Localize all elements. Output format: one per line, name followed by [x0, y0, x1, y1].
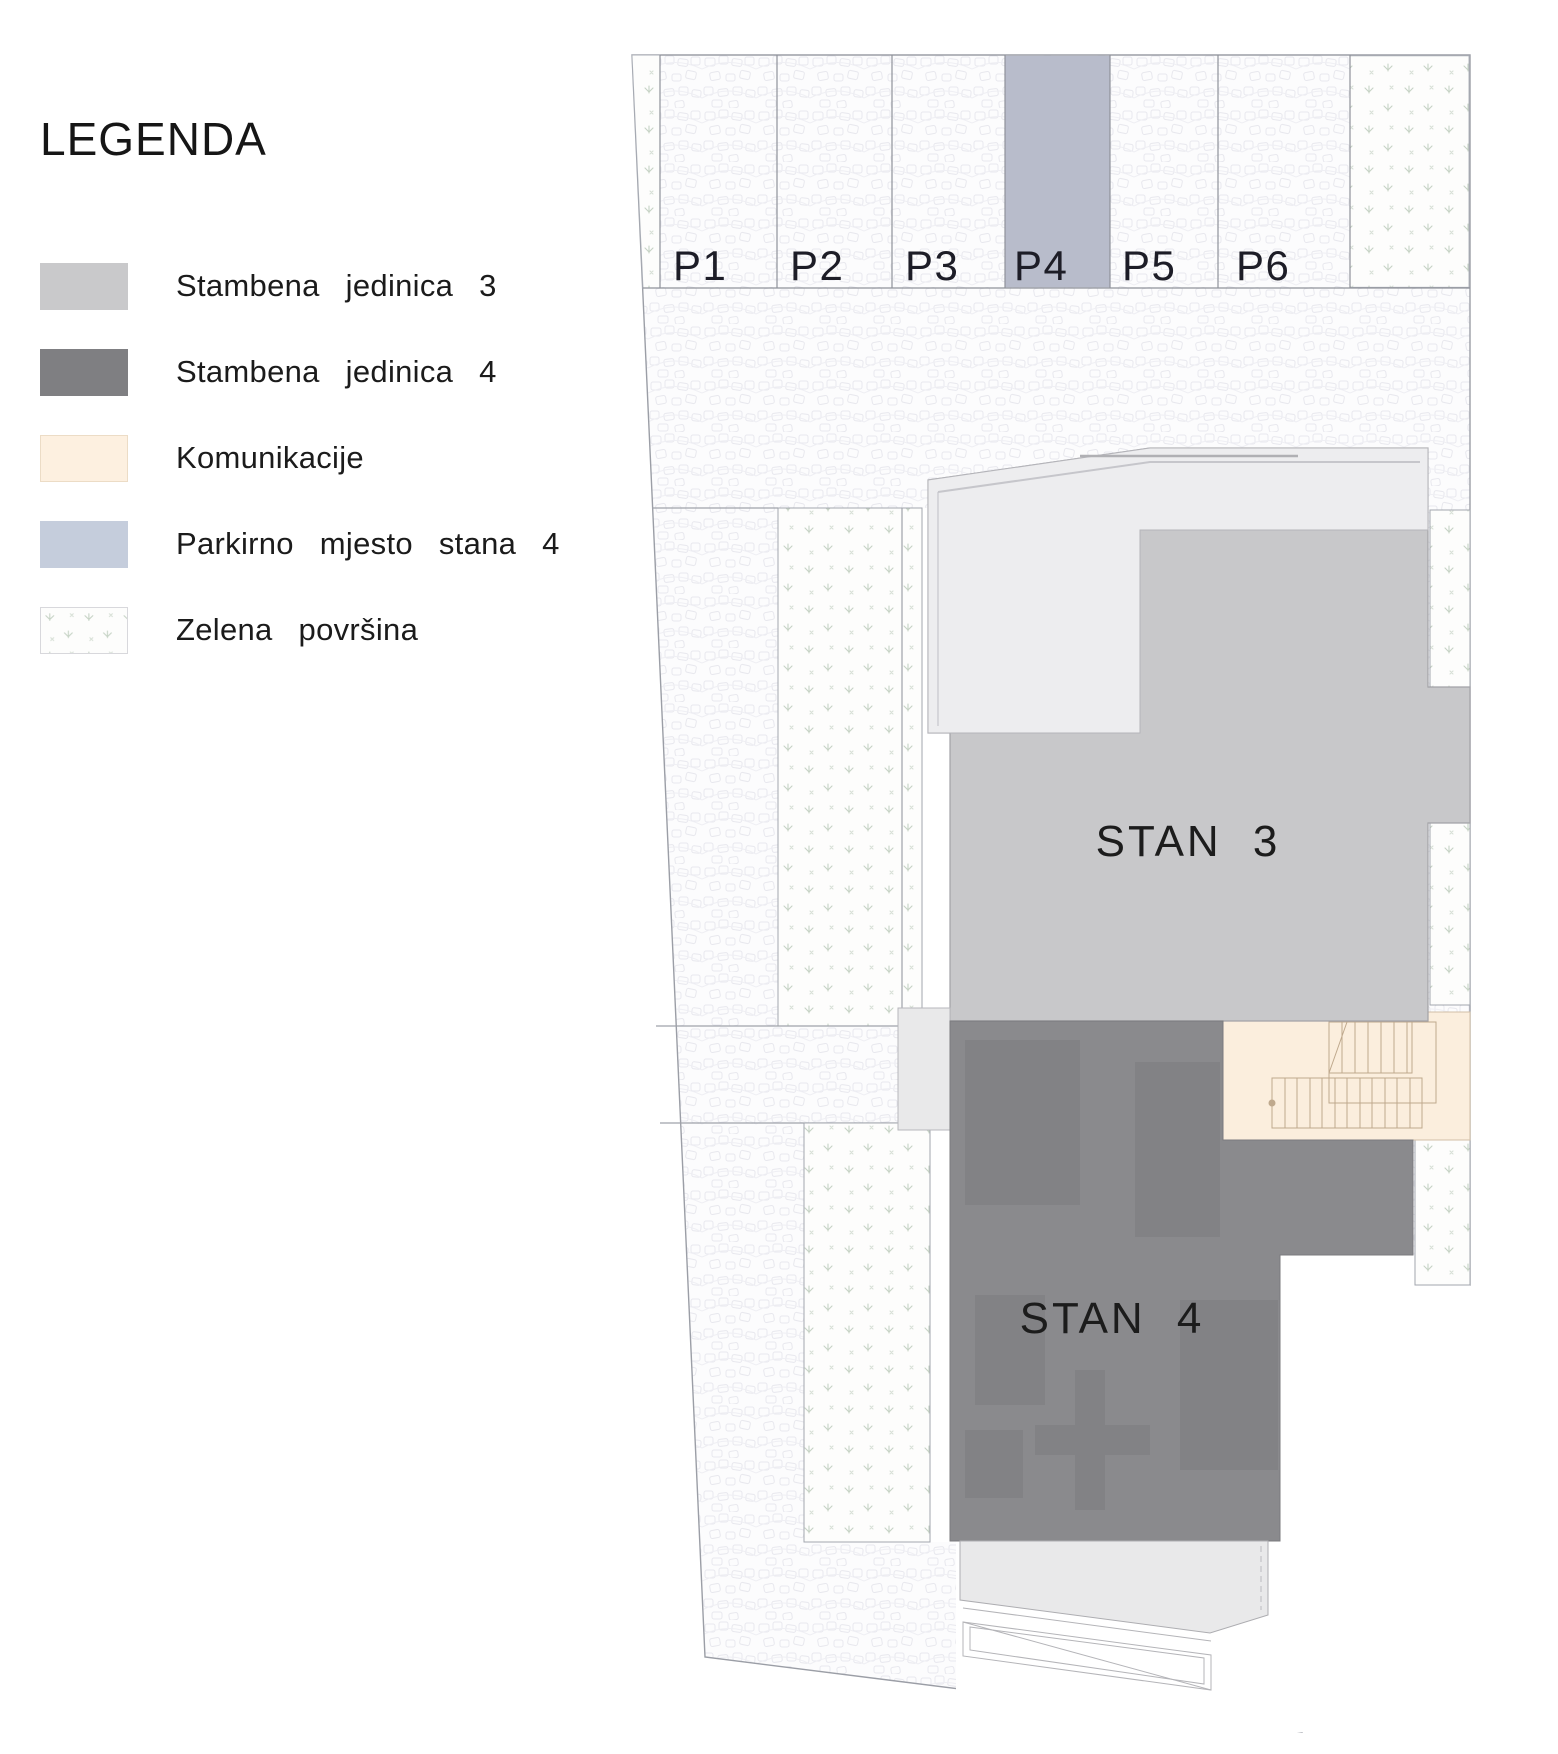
- stan4-label: STAN 4: [1020, 1294, 1205, 1343]
- stall-label-p4: P4: [1014, 242, 1068, 289]
- green-strip-right-3: [1415, 1140, 1470, 1285]
- green-strip-parking-right: [1350, 56, 1469, 287]
- white-gutter-left-lower: [930, 1123, 950, 1542]
- stair-start-dot: [1269, 1100, 1276, 1107]
- stall-label-p2: P2: [790, 242, 844, 289]
- stall-label-p1: P1: [673, 242, 727, 289]
- stall-label-p5: P5: [1122, 242, 1176, 289]
- stall-label-p6: P6: [1236, 242, 1290, 289]
- green-strip-parking-left: [632, 55, 660, 288]
- white-zone-right: [1280, 1255, 1470, 1732]
- stall-label-p3: P3: [905, 242, 959, 289]
- stan3-unit: STAN 3: [928, 448, 1470, 1021]
- green-strip-left-lower: [804, 1123, 930, 1542]
- green-strip-left-upper: [778, 508, 922, 1026]
- green-strip-right-1: [1430, 510, 1470, 687]
- stan3-label: STAN 3: [1096, 817, 1281, 866]
- green-strip-right-2: [1430, 823, 1470, 1005]
- entry-porch: [898, 1008, 950, 1130]
- site-plan: P1 P2 P3 P4 P5 P6: [0, 0, 1558, 1754]
- komunikacije-area: [1223, 1012, 1470, 1140]
